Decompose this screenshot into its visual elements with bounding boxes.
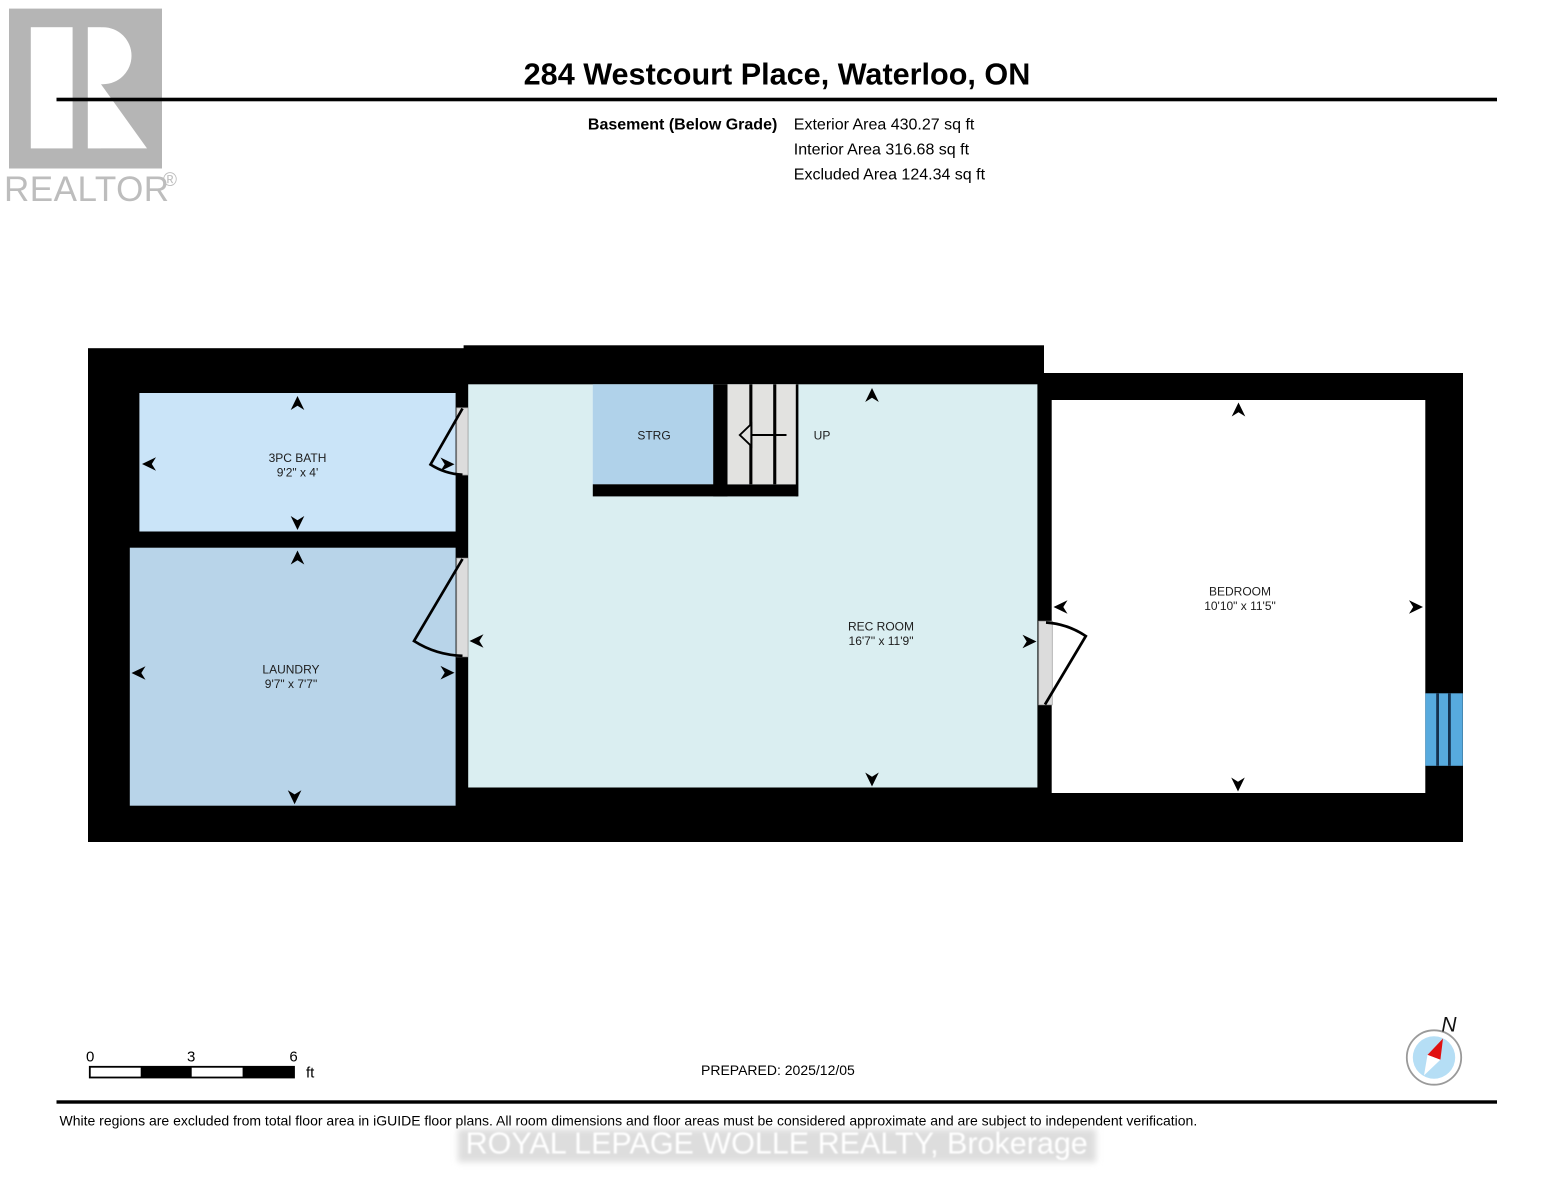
svg-text:ft: ft	[306, 1065, 315, 1082]
svg-text:3PC BATH: 3PC BATH	[269, 451, 327, 465]
svg-text:UP: UP	[814, 428, 831, 442]
svg-text:Basement (Below Grade): Basement (Below Grade)	[588, 116, 777, 133]
svg-text:PREPARED: 2025/12/05: PREPARED: 2025/12/05	[701, 1062, 855, 1078]
svg-text:6: 6	[289, 1049, 297, 1066]
svg-text:16'7" x 11'9": 16'7" x 11'9"	[849, 634, 914, 648]
svg-text:Excluded Area 124.34 sq ft: Excluded Area 124.34 sq ft	[794, 167, 986, 184]
svg-text:®: ®	[163, 170, 177, 191]
svg-text:N: N	[1441, 1014, 1457, 1037]
svg-text:9'2" x 4': 9'2" x 4'	[277, 465, 319, 479]
svg-text:9'7" x 7'7": 9'7" x 7'7"	[265, 677, 317, 691]
svg-text:REC ROOM: REC ROOM	[848, 619, 914, 633]
svg-text:Interior Area 316.68 sq ft: Interior Area 316.68 sq ft	[794, 141, 970, 158]
svg-text:Exterior Area 430.27 sq ft: Exterior Area 430.27 sq ft	[794, 116, 975, 133]
svg-text:ROYAL LEPAGE WOLLE REALTY, Bro: ROYAL LEPAGE WOLLE REALTY, Brokerage	[466, 1127, 1088, 1161]
svg-text:STRG: STRG	[637, 428, 670, 442]
svg-text:10'10" x 11'5": 10'10" x 11'5"	[1204, 599, 1276, 613]
svg-text:0: 0	[86, 1049, 94, 1066]
svg-text:3: 3	[187, 1049, 195, 1066]
svg-text:284 Westcourt Place, Waterloo,: 284 Westcourt Place, Waterloo, ON	[524, 58, 1031, 92]
svg-text:REALTOR: REALTOR	[4, 170, 170, 209]
svg-text:BEDROOM: BEDROOM	[1209, 584, 1271, 598]
svg-text:LAUNDRY: LAUNDRY	[262, 662, 319, 676]
